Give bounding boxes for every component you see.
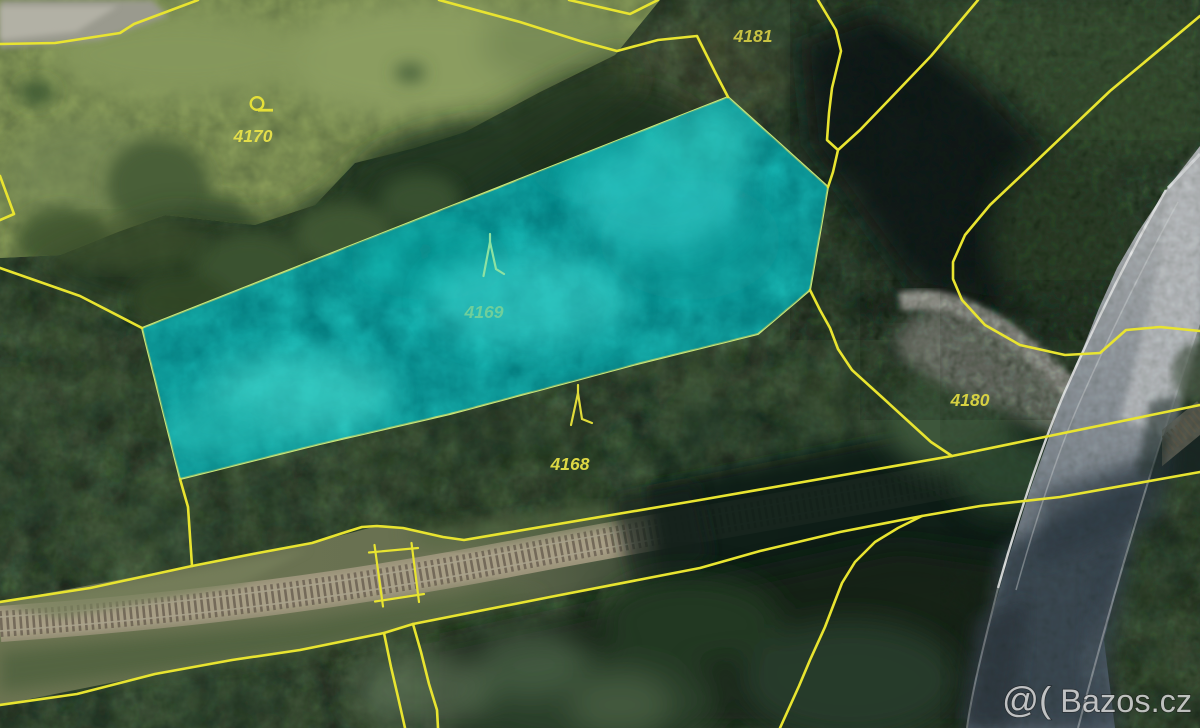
svg-text:4168: 4168 [550,454,590,474]
svg-text:4170: 4170 [233,126,273,146]
svg-text:@( Bazos.cz: @( Bazos.cz [1002,679,1192,720]
svg-text:4169: 4169 [464,302,504,322]
svg-text:4180: 4180 [950,390,990,410]
svg-text:4181: 4181 [733,26,773,46]
